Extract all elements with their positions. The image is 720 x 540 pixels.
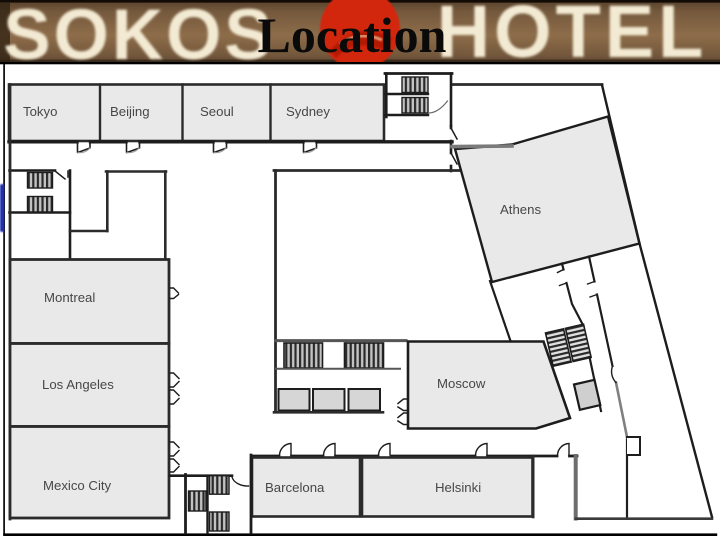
svg-text:Montreal: Montreal [44,290,95,305]
svg-text:Los Angeles: Los Angeles [42,377,114,392]
svg-text:Helsinki: Helsinki [435,480,481,495]
svg-text:Sydney: Sydney [286,104,330,119]
svg-text:Mexico City: Mexico City [43,478,112,493]
svg-text:Seoul: Seoul [200,104,234,119]
svg-text:Location: Location [258,7,447,63]
svg-text:Tokyo: Tokyo [23,104,57,119]
svg-text:Moscow: Moscow [437,376,486,391]
svg-text:Barcelona: Barcelona [265,480,325,495]
svg-text:Athens: Athens [500,202,541,217]
svg-text:Beijing: Beijing [110,104,150,119]
